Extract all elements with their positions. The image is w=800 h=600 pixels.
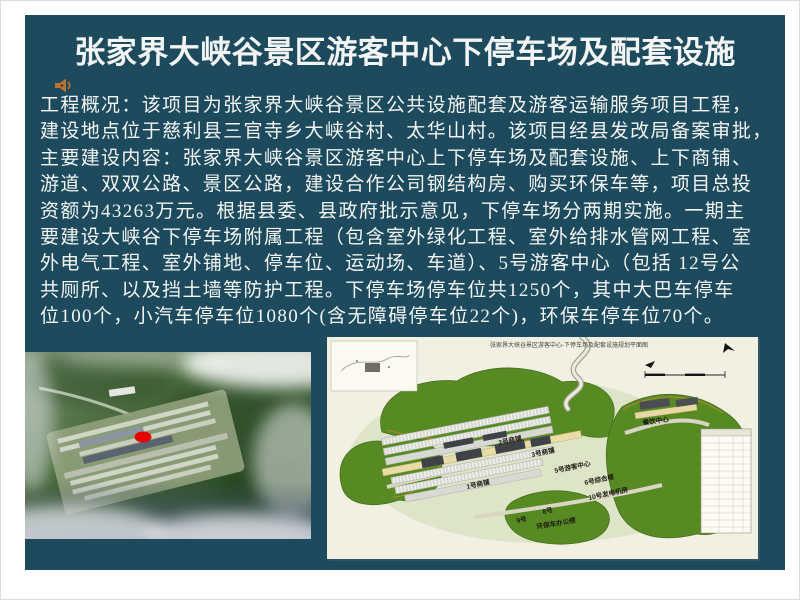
body-line: 建设地点位于慈利县三官寺乡大峡谷村、太华山村。该项目经县发改局备案审批， xyxy=(40,119,772,145)
body-line: 要建设大峡谷下停车场附属工程（包含室外绿化工程、室外给排水管网工程、室 xyxy=(40,225,772,251)
location-marker xyxy=(135,432,152,443)
plan-title: 张家界大峡谷景区游客中心-下停车场及配套设施规划平面图 xyxy=(490,341,648,349)
slide-canvas: 张家界大峡谷景区游客中心下停车场及配套设施 工程概况：该项目为张家界大峡谷景区公… xyxy=(25,15,785,570)
slide-title: 张家界大峡谷景区游客中心下停车场及配套设施 xyxy=(25,27,785,72)
document-page: 张家界大峡谷景区游客中心下停车场及配套设施 工程概况：该项目为张家界大峡谷景区公… xyxy=(0,0,800,600)
body-line: 外电气工程、室外铺地、停车位、运动场、车道）、5号游客中心（包括 12号公 xyxy=(40,251,772,277)
body-line: 游道、双双公路、景区公路，建设合作公司钢结构房、购买环保车等，项目总投 xyxy=(40,172,772,198)
site-plan-image: 张家界大峡谷景区游客中心-下停车场及配套设施规划平面图 餐饮中心 2号商铺 3号… xyxy=(327,337,758,559)
body-line: 资额为43263万元。根据县委、县政府批示意见，下停车场分两期实施。一期主 xyxy=(40,199,772,225)
body-line: 工程概况：该项目为张家界大峡谷景区公共设施配套及游客运输服务项目工程， xyxy=(40,93,772,119)
body-line: 位100个，小汽车停车位1080个(含无障碍停车位22个)，环保车停车位70个。 xyxy=(40,304,772,330)
body-line: 主要建设内容：张家界大峡谷景区游客中心上下停车场及配套设施、上下商铺、 xyxy=(40,146,772,172)
inset-location-map xyxy=(331,341,417,391)
aerial-rendering-image xyxy=(25,352,311,539)
project-overview-paragraph: 工程概况：该项目为张家界大峡谷景区公共设施配套及游客运输服务项目工程， 建设地点… xyxy=(40,93,772,331)
body-line: 共厕所、以及挡土墙等防护工程。下停车场停车位共1250个，其中大巴车停车 xyxy=(40,278,772,304)
speaker-icon[interactable] xyxy=(53,77,75,94)
indicator-table xyxy=(701,429,751,533)
